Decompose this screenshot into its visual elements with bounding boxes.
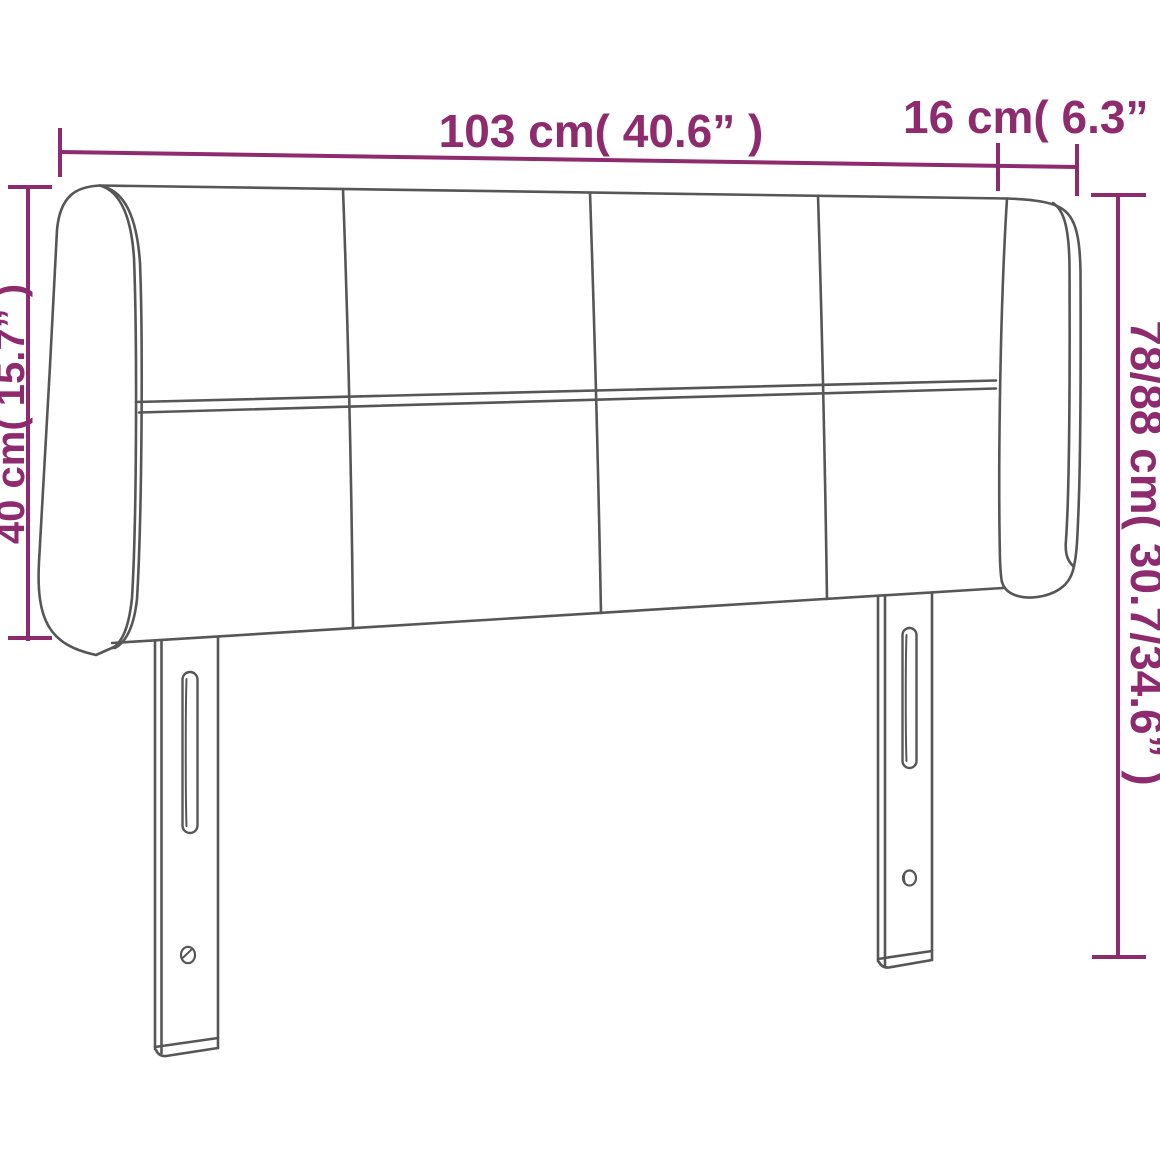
right-leg-slot-depth [906, 635, 907, 761]
right-wing [999, 199, 1080, 598]
left-leg-hole-depth [183, 949, 192, 958]
label-wing-width: 16 cm( 6.3” ) [903, 91, 1160, 143]
left-leg [155, 637, 218, 1057]
dimension-lines [8, 128, 1146, 957]
product-dimension-diagram: 103 cm( 40.6” ) 16 cm( 6.3” ) 40 cm( 15.… [0, 0, 1160, 1160]
left-wing-outline [39, 186, 114, 656]
left-leg-bottom-under [156, 1048, 218, 1056]
diagram-svg: 103 cm( 40.6” ) 16 cm( 6.3” ) 40 cm( 15.… [0, 0, 1160, 1160]
panel-seam-1 [343, 189, 353, 628]
right-leg [878, 593, 932, 968]
right-wing-edge-inner [1053, 203, 1073, 566]
panel-bottom-edge [112, 588, 1003, 643]
right-leg-bottom-under [879, 960, 932, 968]
panel-seam-3 [818, 196, 827, 600]
label-headboard-height: 40 cm( 15.7” ) [0, 284, 33, 544]
right-leg-slot [903, 628, 917, 768]
headboard-drawing [39, 186, 1081, 1057]
left-wing-front-edge [100, 186, 136, 649]
main-panel [100, 186, 1007, 644]
panel-top-edge [100, 186, 1007, 199]
left-leg-bottom-front [155, 1038, 218, 1047]
dimension-labels: 103 cm( 40.6” ) 16 cm( 6.3” ) 40 cm( 15.… [0, 91, 1160, 786]
label-total-height: 78/88 cm( 30.7/34.6” ) [1121, 320, 1160, 785]
left-leg-slot-depth [186, 679, 187, 826]
label-total-width: 103 cm( 40.6” ) [439, 105, 764, 157]
left-wing [39, 186, 142, 656]
right-wing-seam [999, 199, 1007, 583]
panel-seam-2 [590, 193, 601, 614]
right-leg-hole-depth [904, 874, 905, 883]
right-wing-bottom-curve [1002, 566, 1074, 597]
